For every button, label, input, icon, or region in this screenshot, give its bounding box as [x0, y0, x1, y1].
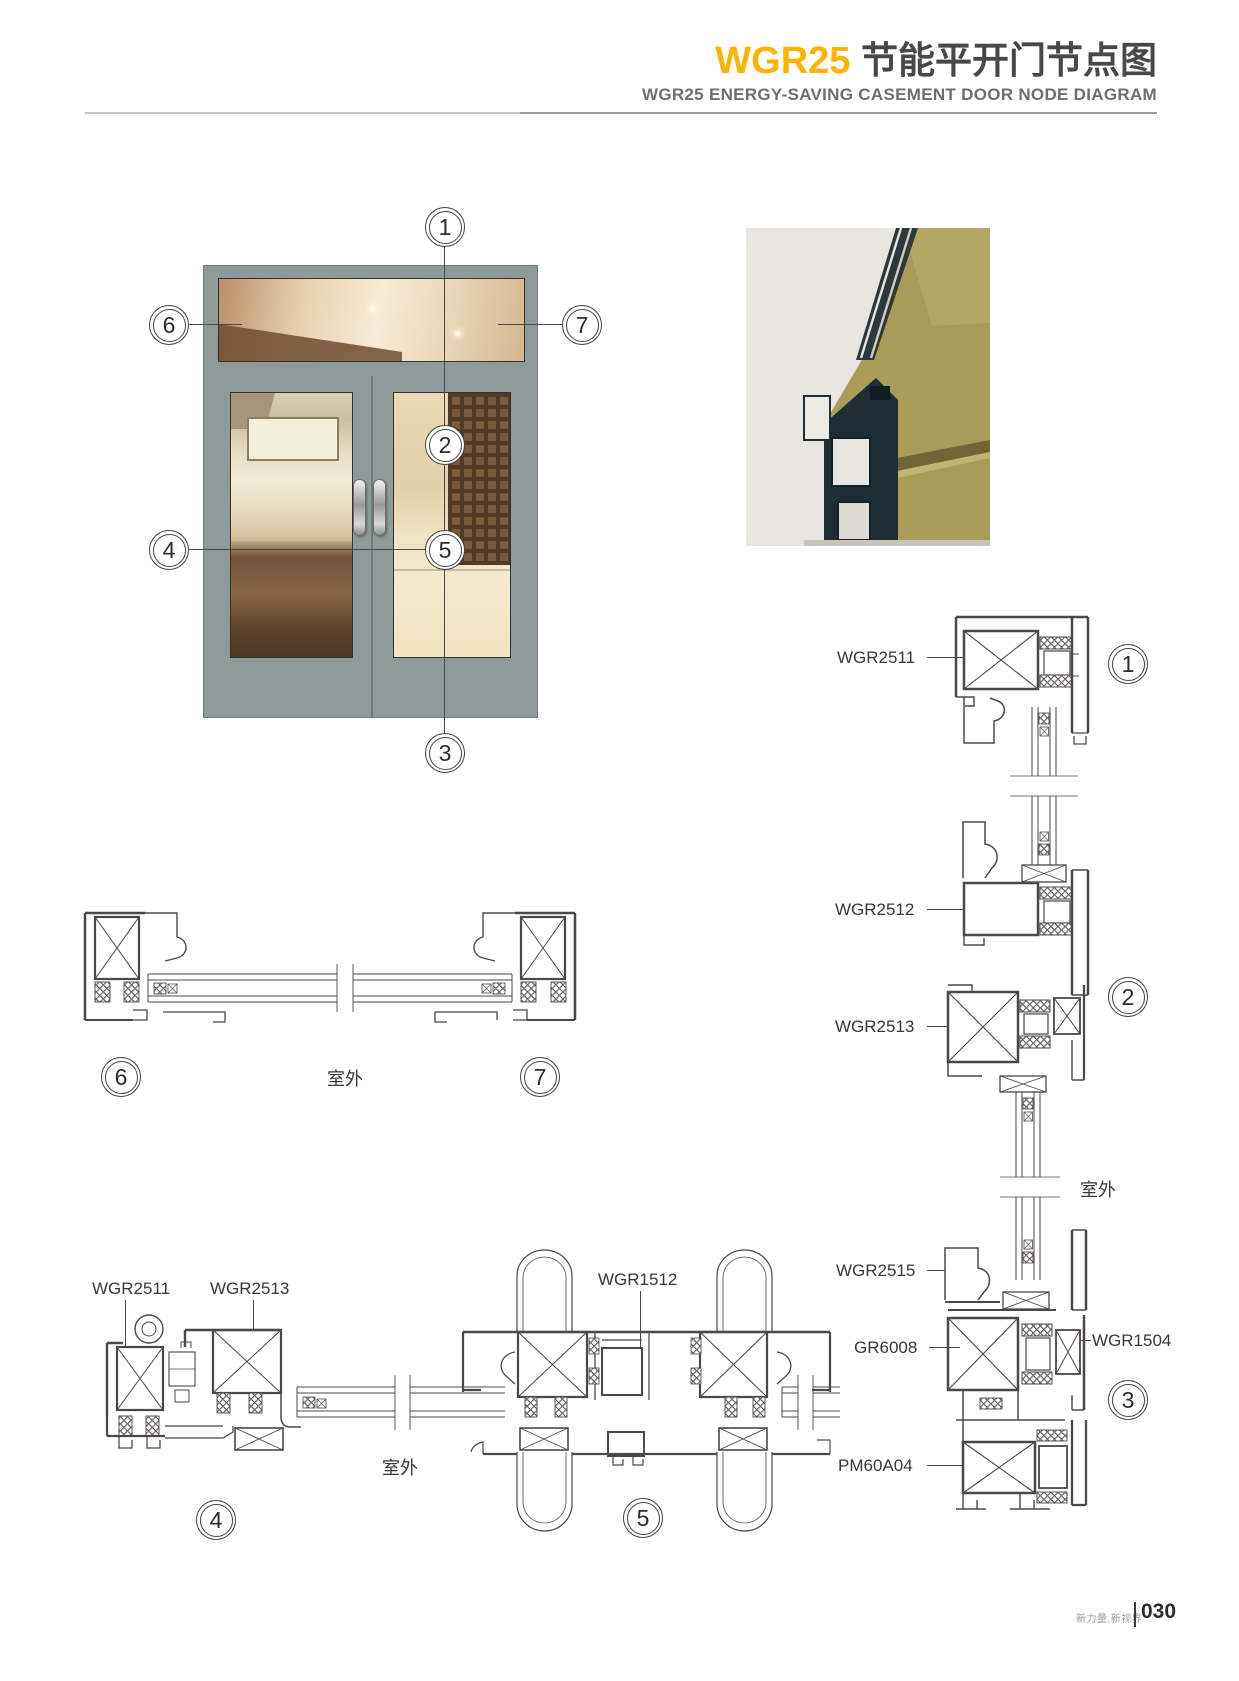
- door-top-profile: [948, 985, 1084, 1092]
- leader-wgr2511: [927, 657, 964, 658]
- label-wgr2511-vertical: WGR2511: [837, 648, 915, 668]
- elevation-callout-3: 3: [425, 733, 465, 773]
- callout-line-6: [189, 324, 242, 325]
- section-circle-4: 4: [196, 1500, 236, 1540]
- callout-line-7: [498, 324, 562, 325]
- label-outdoor-middle: 室外: [327, 1065, 363, 1091]
- leader-gr6008: [929, 1347, 960, 1348]
- photo-counter-edge: [394, 569, 510, 571]
- section-circle-7: 7: [520, 1057, 560, 1097]
- label-gr6008: GR6008: [854, 1338, 917, 1358]
- label-wgr2512: WGR2512: [835, 900, 914, 920]
- photo-counter-edge: [231, 539, 352, 541]
- callout-line-1-2: [444, 247, 445, 425]
- leader-wgr1504: [1080, 1340, 1091, 1341]
- ceiling-light-dot: [369, 305, 376, 312]
- photo-kitchen-window: [247, 417, 339, 461]
- title-english-subtitle: WGR25 ENERGY-SAVING CASEMENT DOOR NODE D…: [642, 85, 1157, 105]
- door-handle-left: [353, 479, 366, 536]
- ceiling-light-dot: [455, 331, 460, 336]
- label-pm60a04: PM60A04: [838, 1456, 913, 1476]
- meeting-stile-section: [463, 1250, 840, 1531]
- callout-line-5-3: [444, 570, 445, 733]
- label-outdoor-right: 室外: [1080, 1176, 1116, 1202]
- glass-unit-lower: [1000, 1092, 1060, 1280]
- elevation-callout-2: 2: [425, 425, 465, 465]
- label-wgr2515: WGR2515: [836, 1261, 915, 1281]
- section-circle-2: 2: [1108, 977, 1148, 1017]
- profile-3d-render-art: [746, 228, 990, 546]
- transom-horizontal-section-drawing: [75, 900, 585, 1030]
- leader-wgr2512: [927, 909, 965, 910]
- label-wgr2513-hinge: WGR2513: [210, 1279, 289, 1299]
- transom-bottom-profile: [963, 822, 1088, 995]
- footer-divider: [1134, 1602, 1136, 1627]
- label-wgr2513-vertical: WGR2513: [835, 1017, 914, 1037]
- leader-wgr2511-hinge: [125, 1300, 126, 1346]
- header-rule-accent: [520, 112, 1157, 114]
- callout-line-2-5: [444, 465, 445, 530]
- section-circle-6: 6: [101, 1057, 141, 1097]
- profile-3d-render: [746, 228, 990, 546]
- elevation-callout-7: 7: [562, 305, 602, 345]
- elevation-callout-5: 5: [425, 530, 465, 570]
- glass-unit-horizontal: [148, 964, 512, 1012]
- label-wgr1504: WGR1504: [1092, 1331, 1171, 1351]
- left-door-glass-photo: [230, 392, 353, 658]
- elevation-callout-1: 1: [425, 207, 465, 247]
- transom-glass-photo: [218, 278, 525, 362]
- door-elevation: [203, 265, 538, 718]
- door-handle-right: [373, 479, 386, 536]
- glass-unit-upper: [1010, 707, 1078, 882]
- vertical-section-drawing: [860, 580, 1090, 1540]
- meeting-stile-gap: [371, 376, 373, 717]
- footer-brand-slogan: 新力量,新视界: [1076, 1610, 1142, 1625]
- head-frame-profile: [956, 617, 1088, 744]
- glass-unit-door: [297, 1375, 505, 1430]
- section-circle-1: 1: [1108, 644, 1148, 684]
- left-jamb-profile: [85, 913, 225, 1022]
- footer-page-number: 030: [1141, 1600, 1176, 1624]
- hinge-side-section: [107, 1315, 301, 1450]
- title-model-code: WGR25: [715, 40, 850, 82]
- base-profile: [956, 1390, 1086, 1509]
- section-circle-3: 3: [1108, 1380, 1148, 1420]
- leader-wgr2513: [927, 1026, 948, 1027]
- catalog-page: { "header": { "model": "WGR25", "title_c…: [0, 0, 1239, 1681]
- elevation-callout-6: 6: [149, 305, 189, 345]
- label-wgr2511-hinge: WGR2511: [92, 1279, 170, 1299]
- leader-pm60a04: [927, 1465, 963, 1466]
- transom-photo-wood-beam: [219, 320, 402, 361]
- leader-wgr2515: [927, 1270, 945, 1271]
- threshold-profile: [948, 1315, 1084, 1410]
- label-wgr1512: WGR1512: [598, 1270, 677, 1290]
- leader-wgr2513-hinge: [253, 1300, 254, 1331]
- page-header: WGR25 节能平开门节点图 WGR25 ENERGY-SAVING CASEM…: [642, 40, 1157, 105]
- section-circle-5: 5: [623, 1498, 663, 1538]
- label-outdoor-bottom: 室外: [382, 1454, 418, 1480]
- callout-line-4-5: [189, 549, 425, 550]
- page-title: WGR25 节能平开门节点图: [642, 40, 1157, 82]
- leader-wgr1512: [640, 1291, 641, 1348]
- title-chinese: 节能平开门节点图: [861, 40, 1157, 81]
- elevation-callout-4: 4: [149, 530, 189, 570]
- right-jamb-profile: [435, 913, 575, 1022]
